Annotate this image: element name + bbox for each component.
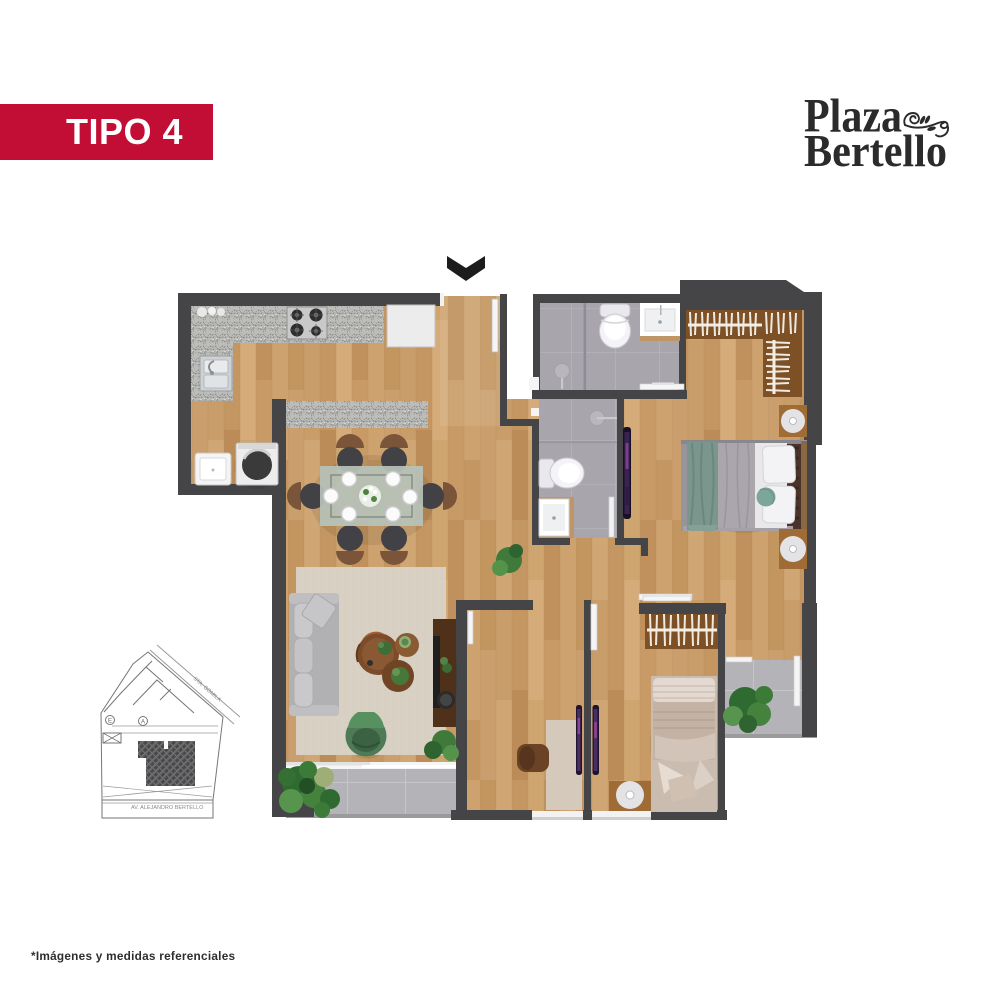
svg-text:E: E bbox=[108, 719, 112, 725]
svg-text:A: A bbox=[141, 720, 145, 726]
svg-text:AV. ALEJANDRO BERTELLO: AV. ALEJANDRO BERTELLO bbox=[131, 805, 204, 811]
svg-text:STA. GOMILA: STA. GOMILA bbox=[192, 676, 222, 704]
svg-text:Bertello: Bertello bbox=[804, 125, 947, 176]
